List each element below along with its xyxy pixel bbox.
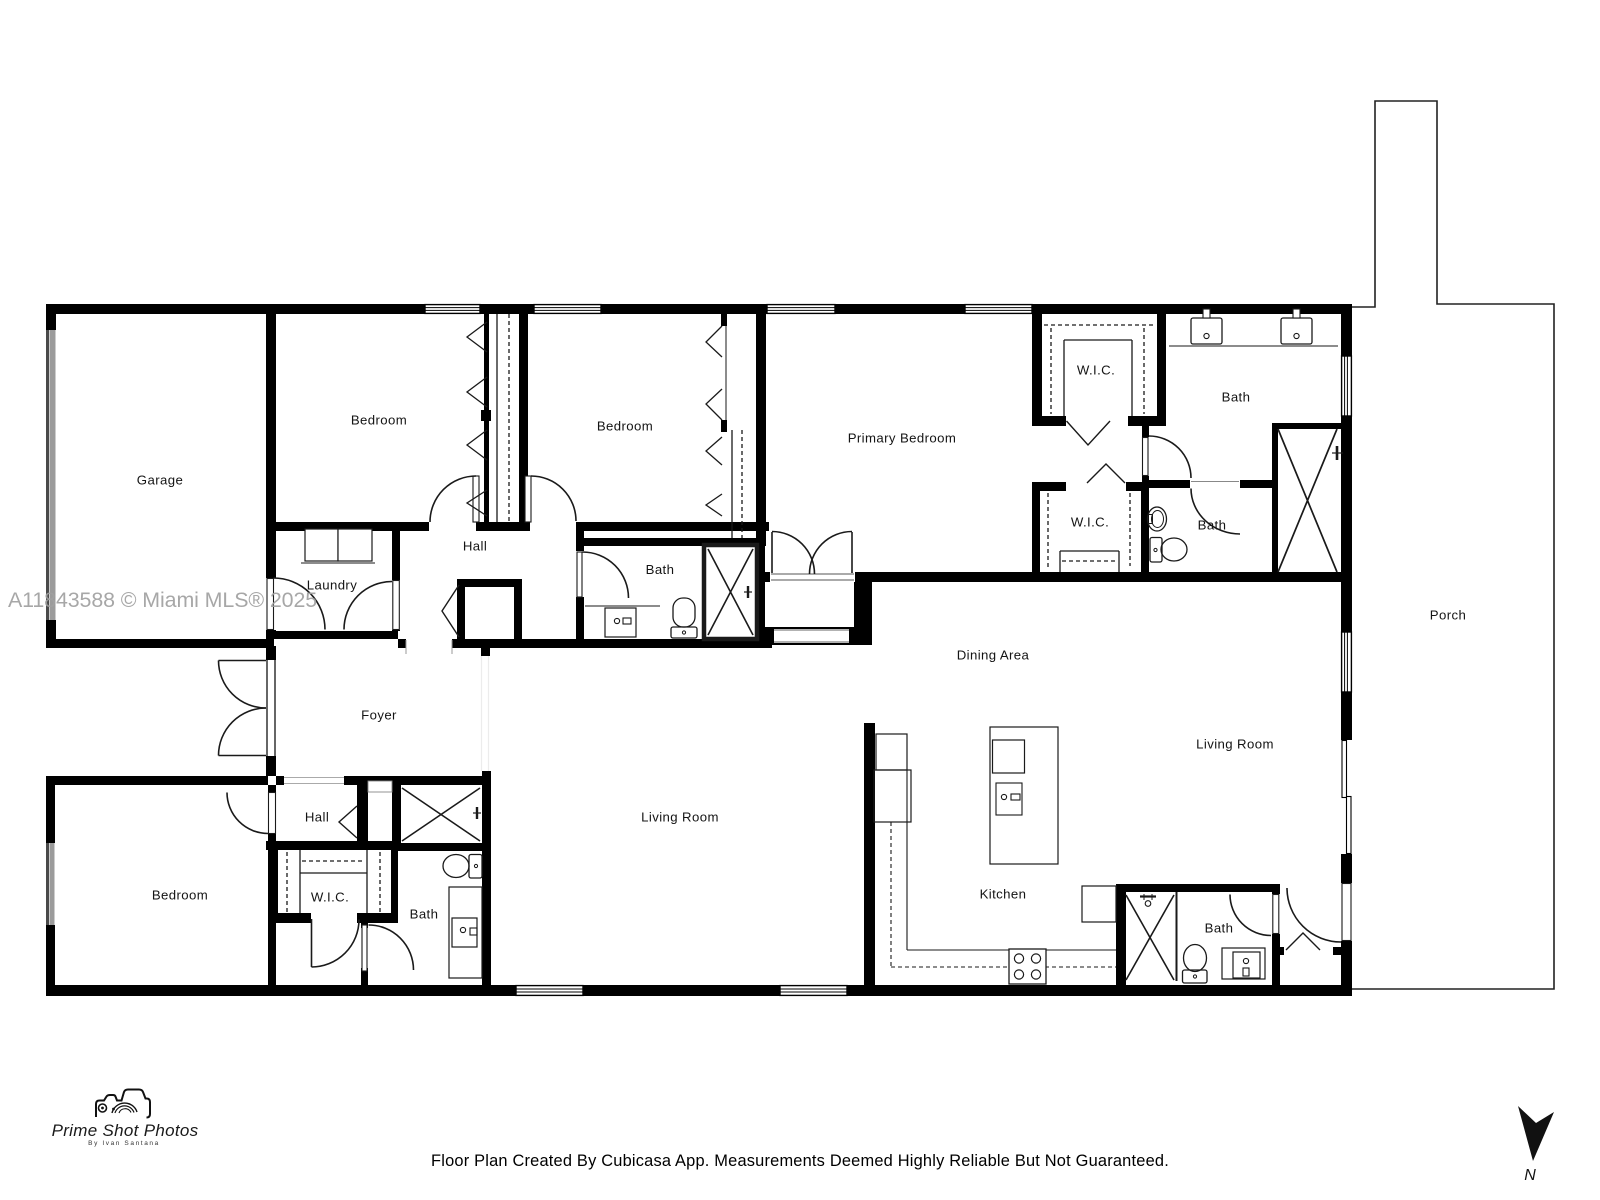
- svg-text:Bedroom: Bedroom: [152, 888, 208, 903]
- svg-text:Living Room: Living Room: [641, 810, 719, 825]
- svg-text:Bedroom: Bedroom: [597, 419, 653, 434]
- svg-text:Porch: Porch: [1430, 608, 1466, 623]
- svg-text:Bath: Bath: [646, 562, 675, 577]
- svg-text:A11843588 © Miami MLS® 2025: A11843588 © Miami MLS® 2025: [8, 588, 317, 612]
- svg-text:Hall: Hall: [305, 810, 329, 825]
- svg-text:Foyer: Foyer: [361, 708, 397, 723]
- svg-text:Bedroom: Bedroom: [351, 413, 407, 428]
- svg-text:Living Room: Living Room: [1196, 737, 1274, 752]
- svg-text:Bath: Bath: [1222, 390, 1251, 405]
- svg-text:Floor Plan Created By Cubicasa: Floor Plan Created By Cubicasa App. Meas…: [431, 1152, 1169, 1170]
- svg-text:Hall: Hall: [463, 539, 487, 554]
- svg-text:Garage: Garage: [137, 473, 183, 488]
- svg-text:Primary Bedroom: Primary Bedroom: [848, 431, 957, 446]
- svg-text:Bath: Bath: [1198, 518, 1227, 533]
- svg-text:W.I.C.: W.I.C.: [311, 890, 349, 905]
- svg-text:N: N: [1524, 1167, 1536, 1184]
- svg-text:Prime Shot Photos: Prime Shot Photos: [52, 1121, 199, 1140]
- svg-text:By Ivan Santana: By Ivan Santana: [88, 1140, 160, 1147]
- svg-text:W.I.C.: W.I.C.: [1077, 363, 1115, 378]
- svg-text:W.I.C.: W.I.C.: [1071, 515, 1109, 530]
- svg-text:Kitchen: Kitchen: [980, 887, 1027, 902]
- svg-text:Bath: Bath: [1205, 921, 1234, 936]
- svg-text:Bath: Bath: [410, 907, 439, 922]
- svg-text:Dining Area: Dining Area: [957, 648, 1030, 663]
